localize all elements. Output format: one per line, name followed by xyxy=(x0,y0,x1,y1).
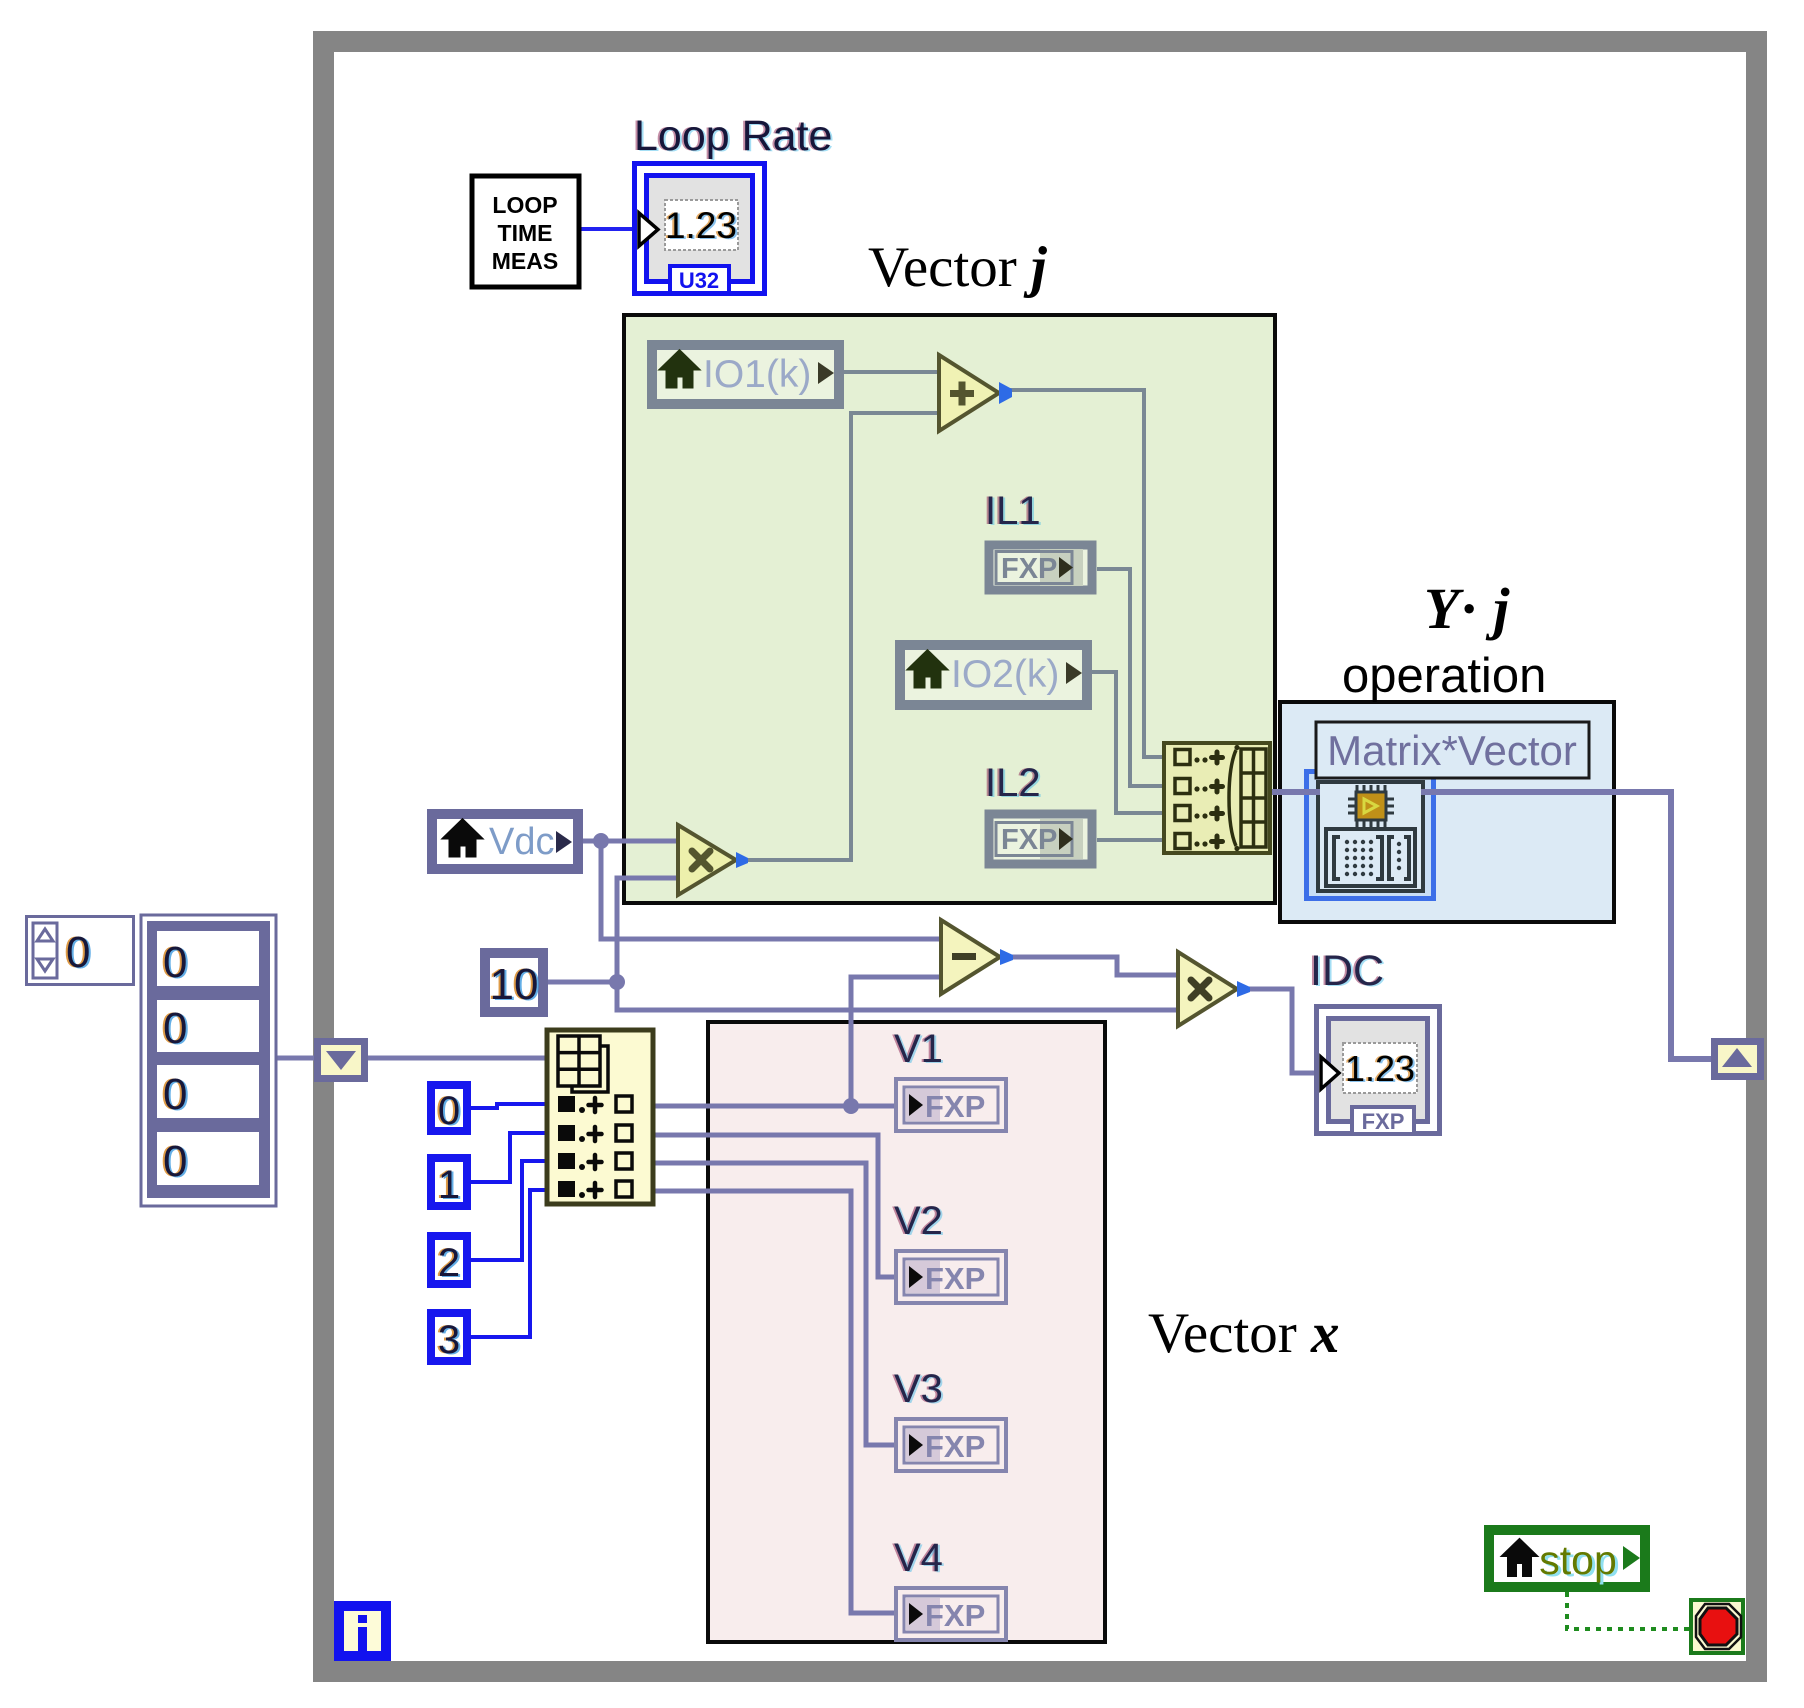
svg-text:stop: stop xyxy=(1539,1537,1617,1583)
svg-text:V2: V2 xyxy=(894,1199,943,1243)
svg-text:0: 0 xyxy=(163,1137,187,1186)
svg-text:IL1: IL1 xyxy=(985,489,1041,533)
svg-text:IO2(k): IO2(k) xyxy=(951,653,1059,696)
svg-text:TIME: TIME xyxy=(498,220,553,246)
svg-text:FXP: FXP xyxy=(1001,553,1057,585)
svg-text:U32: U32 xyxy=(679,268,719,293)
svg-text:operation: operation xyxy=(1342,649,1546,703)
svg-text:IDC: IDC xyxy=(1310,947,1384,995)
svg-text:Matrix*Vector: Matrix*Vector xyxy=(1327,727,1577,774)
svg-text:0: 0 xyxy=(163,1070,187,1119)
svg-text:Vector j: Vector j xyxy=(868,236,1047,299)
svg-text:3: 3 xyxy=(438,1318,460,1362)
svg-text:Y· j: Y· j xyxy=(1424,576,1510,641)
svg-text:0: 0 xyxy=(163,1004,187,1053)
svg-text:FXP: FXP xyxy=(1362,1109,1405,1134)
svg-text:1.23: 1.23 xyxy=(1345,1048,1415,1089)
svg-text:0: 0 xyxy=(163,938,187,987)
svg-text:10: 10 xyxy=(490,960,539,1009)
svg-text:2: 2 xyxy=(438,1241,460,1285)
svg-text:IO1(k): IO1(k) xyxy=(703,353,811,396)
svg-text:1: 1 xyxy=(438,1163,460,1207)
svg-text:MEAS: MEAS xyxy=(492,248,558,274)
svg-text:V4: V4 xyxy=(894,1536,943,1580)
svg-text:LOOP: LOOP xyxy=(492,192,557,218)
svg-text:FXP: FXP xyxy=(925,1598,985,1633)
svg-text:Loop Rate: Loop Rate xyxy=(634,112,832,160)
svg-text:FXP: FXP xyxy=(925,1261,985,1296)
svg-text:Vector x: Vector x xyxy=(1148,1302,1340,1365)
svg-text:FXP: FXP xyxy=(925,1429,985,1464)
svg-text:1.23: 1.23 xyxy=(665,205,737,246)
svg-text:V1: V1 xyxy=(894,1027,943,1071)
svg-text:0: 0 xyxy=(438,1089,460,1133)
svg-text:FXP: FXP xyxy=(925,1089,985,1124)
svg-text:V3: V3 xyxy=(894,1367,943,1411)
svg-text:0: 0 xyxy=(66,928,90,977)
svg-text:Vdc: Vdc xyxy=(489,821,554,863)
svg-text:FXP: FXP xyxy=(1001,824,1057,856)
svg-text:IL2: IL2 xyxy=(985,761,1041,805)
